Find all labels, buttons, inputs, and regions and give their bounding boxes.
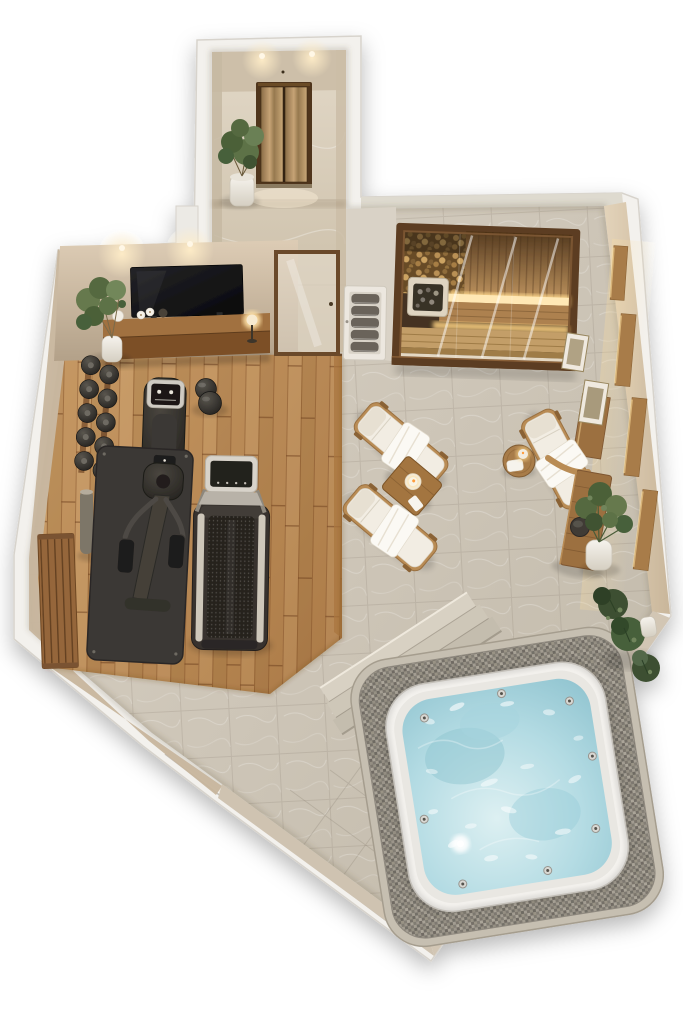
floor-plan-stage: [0, 0, 683, 1024]
elevator-door: [256, 71, 312, 189]
round-table: [502, 445, 536, 478]
sauna-glass-front: [400, 231, 572, 363]
slat-radiator: [38, 533, 79, 668]
glass-door: [276, 252, 338, 354]
floor-plan: [14, 36, 671, 961]
towel-cabinet: [343, 286, 386, 361]
floor-plan-render: [0, 0, 683, 1024]
sauna: [391, 223, 580, 381]
hot-tub: [380, 656, 635, 918]
